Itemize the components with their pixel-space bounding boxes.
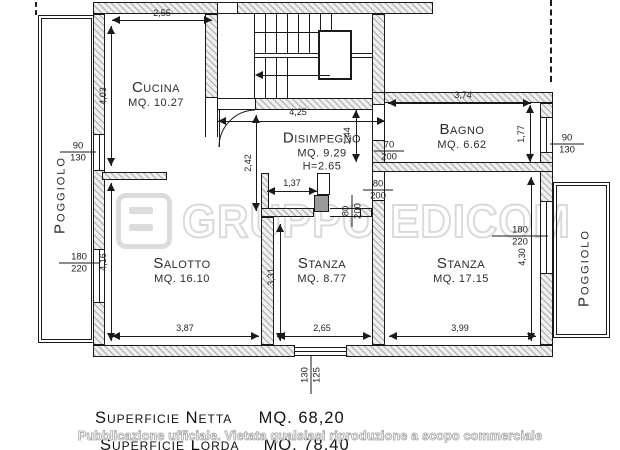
room-label-stanza-centro: StanzaMQ. 8.77 xyxy=(297,255,346,285)
dim-line xyxy=(112,336,259,337)
dim-arrow xyxy=(377,117,385,125)
stair-landing xyxy=(255,53,372,54)
wall xyxy=(540,103,553,118)
wall xyxy=(93,170,105,250)
stair-boundary xyxy=(254,13,373,99)
stair-tread xyxy=(309,14,310,53)
dim-label: 3,31 xyxy=(266,268,276,286)
dim-label: 3,99 xyxy=(451,323,469,333)
dim-arrow xyxy=(252,203,260,211)
dim-arrow xyxy=(526,105,534,113)
dim-line xyxy=(531,177,532,341)
opening-top xyxy=(218,2,237,14)
room-label-stanza-destra: StanzaMQ. 17.15 xyxy=(433,255,489,285)
dim-arrow xyxy=(218,117,226,125)
dim-arrow xyxy=(526,154,534,162)
dim-arrow xyxy=(276,224,284,232)
wall xyxy=(540,152,553,202)
dim-arrow xyxy=(252,115,260,123)
entrance-opening xyxy=(218,98,255,110)
dim-line xyxy=(388,103,531,104)
dim-line xyxy=(218,121,385,122)
wall xyxy=(372,92,385,105)
dim-arrow xyxy=(112,16,120,24)
stair-tread xyxy=(265,14,266,53)
opening-size-label: 80200 xyxy=(363,179,393,202)
net-area-label: Superficie Netta xyxy=(95,409,253,428)
wall xyxy=(93,345,295,357)
stair-tread xyxy=(298,14,299,53)
dim-arrow xyxy=(255,71,263,79)
boundary-dashed-line xyxy=(550,0,552,82)
window-pane xyxy=(99,135,100,170)
dim-line xyxy=(280,224,281,341)
wall xyxy=(102,172,167,180)
room-label-poggiolo-sx: Poggiolo xyxy=(52,156,69,234)
dim-arrow xyxy=(107,333,115,341)
dim-line xyxy=(111,26,112,166)
dim-arrow xyxy=(107,183,115,191)
flue xyxy=(314,195,329,212)
dim-label: 2,55 xyxy=(153,8,171,18)
dim-line xyxy=(389,336,536,337)
dim-line xyxy=(111,183,112,341)
wall xyxy=(93,302,105,345)
dim-label: 2,42 xyxy=(243,154,253,172)
stair-well xyxy=(318,30,352,80)
opening-size-label: 180220 xyxy=(492,225,548,248)
stair-tread xyxy=(265,57,266,98)
floor-plan: GRUPPO EDICOM 2,554,034,252,421,441,373,… xyxy=(0,0,620,450)
room-label-cucina: CucinaMQ. 10.27 xyxy=(128,79,184,109)
room-label-bagno: BagnoMQ. 6.62 xyxy=(437,121,486,151)
opening-size-label: 90130 xyxy=(550,133,584,156)
wall xyxy=(255,98,377,110)
dim-label: 1,37 xyxy=(283,178,301,188)
flue-outline xyxy=(317,173,330,195)
opening-size-label: 70200 xyxy=(374,140,404,163)
room-label-salotto: SalottoMQ. 16.10 xyxy=(153,255,210,285)
dim-line xyxy=(112,20,212,21)
dim-label: 3,87 xyxy=(176,323,194,333)
dim-label: 4,30 xyxy=(517,248,527,266)
opening-size-label: 180220 xyxy=(59,252,99,275)
dim-arrow xyxy=(363,332,371,340)
net-area-line: Superficie Netta MQ. 68,20 xyxy=(95,409,345,428)
dim-arrow xyxy=(389,332,397,340)
dim-arrow xyxy=(309,187,317,195)
wall xyxy=(372,14,385,98)
window-pane xyxy=(546,118,547,152)
copyright-notice: Pubblicazione ufficiale. Vietata qualsia… xyxy=(0,429,620,443)
dim-label: 4,03 xyxy=(98,87,108,105)
dim-arrow xyxy=(388,99,396,107)
room-label-poggiolo-dx: Poggiolo xyxy=(576,229,593,307)
dim-label: 1,77 xyxy=(516,125,526,143)
dim-arrow xyxy=(251,332,259,340)
window-pane xyxy=(295,351,346,352)
wall xyxy=(237,2,433,14)
door-swing-arc xyxy=(219,110,256,148)
dim-arrow xyxy=(276,333,284,341)
dim-label: 4,25 xyxy=(289,107,307,117)
wall xyxy=(205,14,218,98)
dim-arrow xyxy=(527,333,535,341)
dim-arrow xyxy=(267,187,275,195)
boundary-dashed-line xyxy=(35,2,37,15)
wall xyxy=(261,208,314,217)
stair-tread xyxy=(287,14,288,53)
wall xyxy=(540,273,553,345)
wall xyxy=(346,345,553,357)
wall xyxy=(93,14,105,135)
dim-label: 4,16 xyxy=(98,253,108,271)
net-area-value: MQ. 68,20 xyxy=(259,409,345,428)
dim-arrow xyxy=(204,16,212,24)
wall xyxy=(372,162,553,172)
dim-arrow xyxy=(107,158,115,166)
stair-tread xyxy=(276,57,277,98)
dim-label: 2,65 xyxy=(313,323,331,333)
stair-arrow-tail xyxy=(262,75,330,76)
opening-size-label: 130125 xyxy=(300,356,323,394)
dim-label: 3,74 xyxy=(454,90,472,100)
opening-size-label: 80200 xyxy=(341,195,364,227)
room-label-disimpegno: DisimpegnoMQ. 9.29H=2.65 xyxy=(283,130,361,173)
dim-arrow xyxy=(527,177,535,185)
wall xyxy=(372,200,385,345)
dim-arrow xyxy=(107,26,115,34)
dim-arrow xyxy=(352,110,360,118)
dim-line xyxy=(277,336,371,337)
door-cucina xyxy=(205,98,218,137)
dim-line xyxy=(256,115,257,211)
stair-landing xyxy=(255,57,372,58)
stair-tread xyxy=(287,57,288,98)
plan-drawing: 2,554,034,252,421,441,373,741,773,874,16… xyxy=(0,0,620,450)
stair-tread xyxy=(276,14,277,53)
